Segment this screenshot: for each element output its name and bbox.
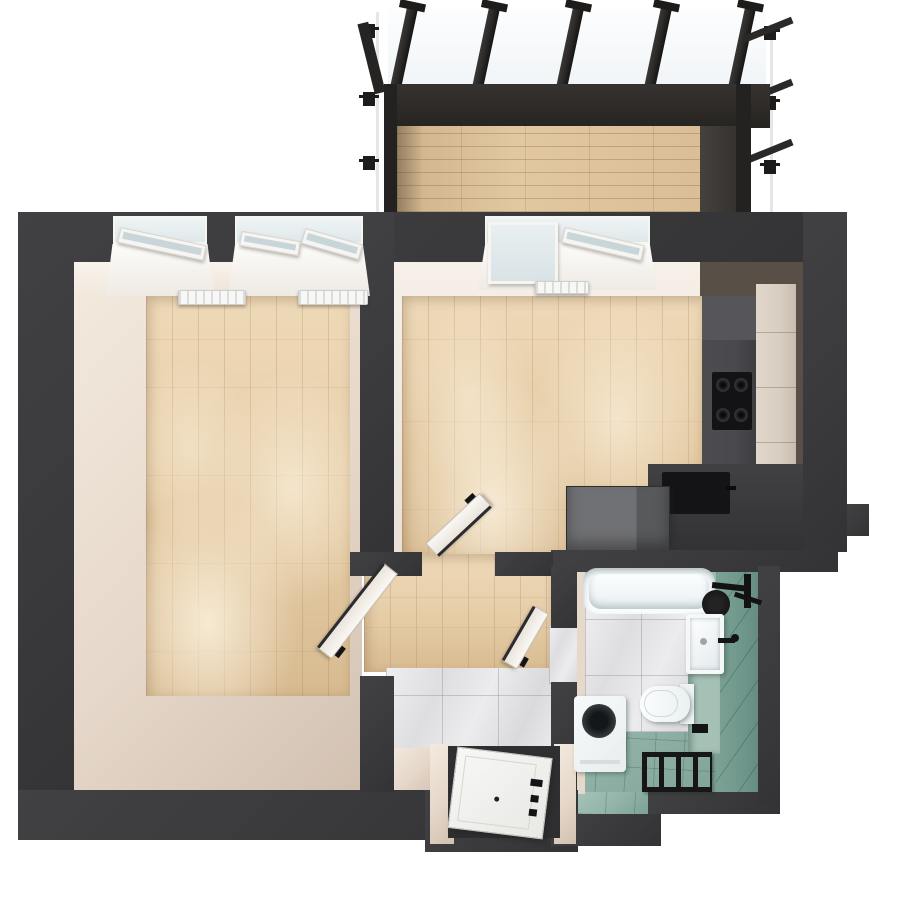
balcony-deck-shade	[397, 126, 423, 212]
balcony	[360, 0, 780, 216]
wall-kitchen-door-jamb	[495, 552, 553, 576]
washbasin-drain	[700, 638, 707, 645]
wall-bath-left-upper	[551, 566, 577, 628]
hob-burner	[734, 378, 748, 392]
entrance-door-handle	[530, 779, 543, 787]
entrance-door	[447, 746, 552, 839]
hallway-floor-marble	[386, 668, 552, 752]
kitchen-sink	[662, 472, 730, 514]
living-room-floor	[146, 296, 350, 696]
bathroom-floor-teal-step	[577, 792, 652, 814]
pergola-rafter	[390, 7, 418, 89]
wall-right-stub	[847, 504, 869, 536]
balcony-side-wall	[700, 126, 736, 212]
bathtub	[583, 568, 715, 614]
washing-machine	[574, 696, 626, 772]
balcony-deck	[397, 126, 736, 212]
glass-clamp-left	[363, 156, 375, 170]
bathtub-basin	[589, 574, 709, 609]
kitchen-hob	[712, 372, 752, 430]
entrance-door-panel-line	[457, 755, 537, 829]
hob-burner	[734, 408, 748, 422]
balcony-right-beam	[736, 84, 751, 214]
floor-plan-canvas	[0, 0, 900, 900]
kitchen-fridge-top	[702, 296, 756, 340]
pergola-rafter	[472, 7, 500, 89]
glass-clamp-left	[363, 92, 375, 106]
rafter-connector	[481, 0, 508, 12]
toilet-seat-line	[644, 690, 678, 717]
hob-burner	[716, 408, 730, 422]
pergola-rafter	[556, 7, 584, 89]
washbasin	[686, 614, 724, 674]
rafter-connector	[737, 0, 764, 12]
wall-right	[803, 212, 847, 552]
entrance-door-lock-lower	[528, 809, 537, 817]
toilet-flush-plate	[692, 724, 708, 733]
pergola-rafter	[728, 7, 756, 89]
kitchen-island	[566, 486, 670, 556]
rafter-connector	[653, 0, 680, 12]
washing-machine-lid	[582, 704, 616, 738]
rafter-connector	[565, 0, 592, 12]
rafter-connector	[399, 0, 426, 12]
wall-left	[18, 212, 74, 840]
pergola-rafter	[644, 7, 672, 89]
hob-burner	[716, 378, 730, 392]
glass-clamp-right	[764, 160, 776, 174]
balcony-door-pane	[488, 222, 558, 284]
wall-divider-lower	[360, 676, 394, 792]
balcony-beam-band	[384, 84, 770, 128]
basin-faucet-knob	[731, 634, 739, 642]
towel-radiator	[642, 752, 712, 792]
toilet-bowl	[640, 686, 690, 722]
balcony-left-beam	[384, 84, 397, 214]
washing-machine-panel	[580, 760, 620, 764]
kitchen-faucet	[726, 486, 736, 490]
entrance-door-lock	[530, 795, 539, 803]
